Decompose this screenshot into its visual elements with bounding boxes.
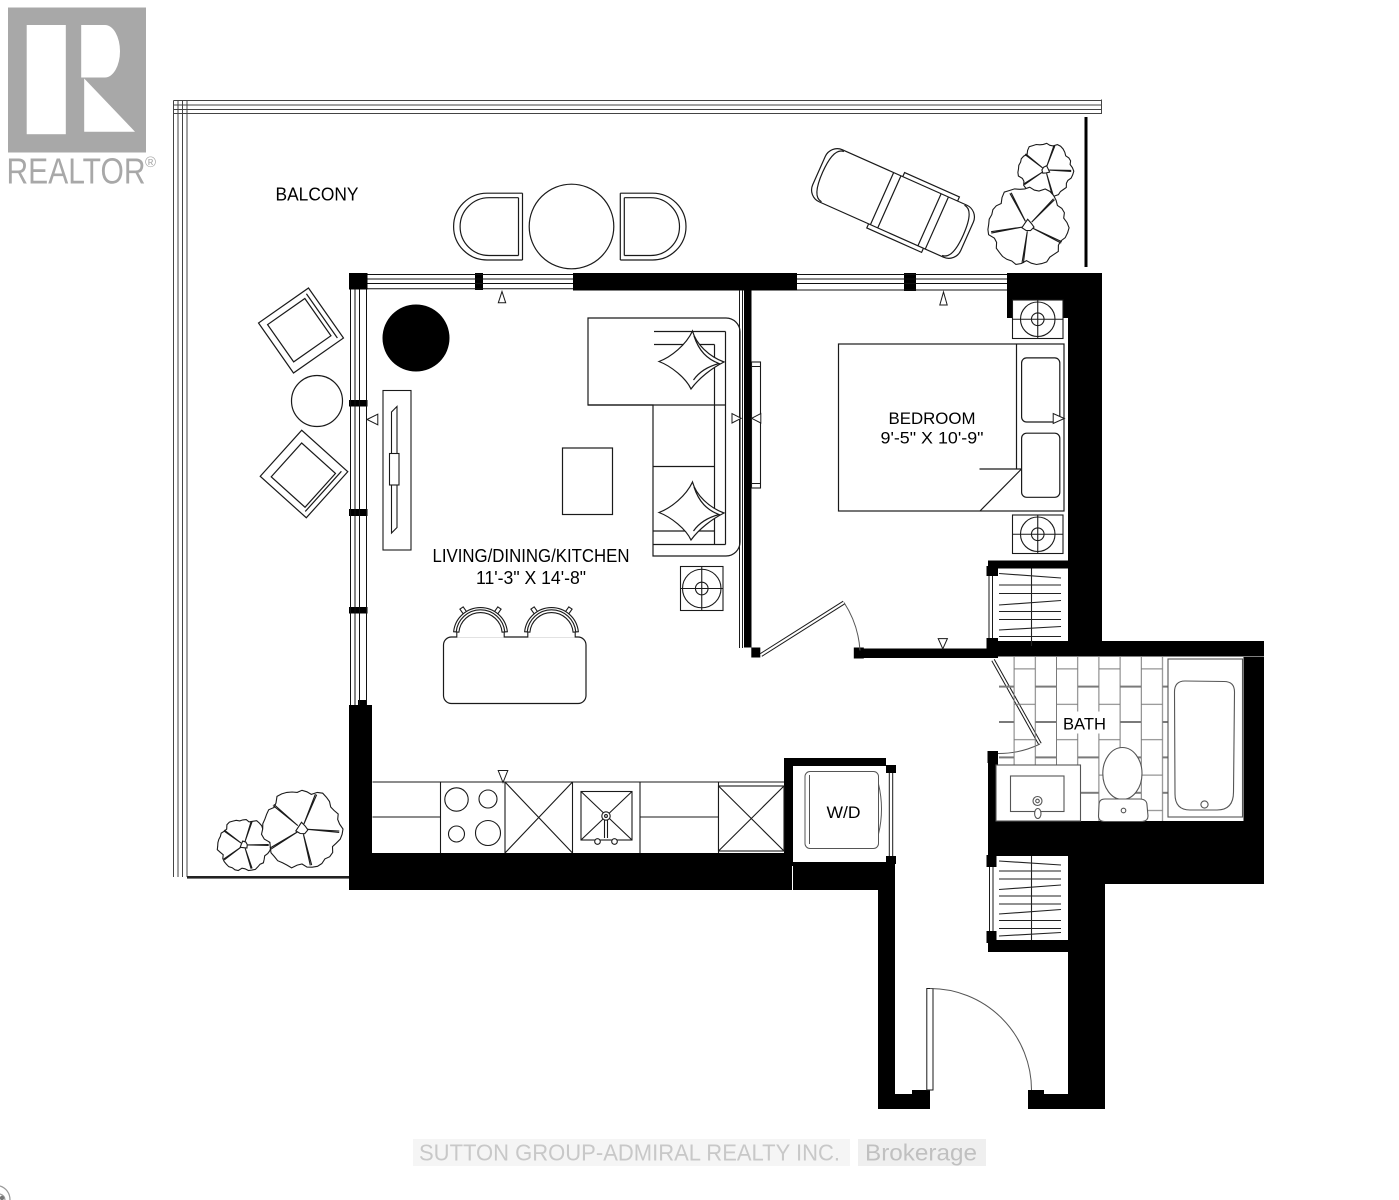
svg-text:BALCONY: BALCONY [276,184,359,205]
svg-text:BATH: BATH [1063,716,1106,734]
svg-text:LIVING/DINING/KITCHEN: LIVING/DINING/KITCHEN [433,545,630,566]
svg-text:W/D: W/D [827,803,861,822]
svg-text:SUTTON GROUP-ADMIRAL REALTY IN: SUTTON GROUP-ADMIRAL REALTY INC. [419,1140,840,1166]
svg-text:BEDROOM: BEDROOM [889,409,976,428]
svg-text:REALTOR: REALTOR [7,151,146,192]
svg-text:9'-5" X 10'-9": 9'-5" X 10'-9" [881,429,984,448]
svg-text:Brokerage: Brokerage [865,1140,977,1166]
svg-text:11'-3" X 14'-8": 11'-3" X 14'-8" [476,567,586,588]
svg-text:®: ® [145,154,156,171]
